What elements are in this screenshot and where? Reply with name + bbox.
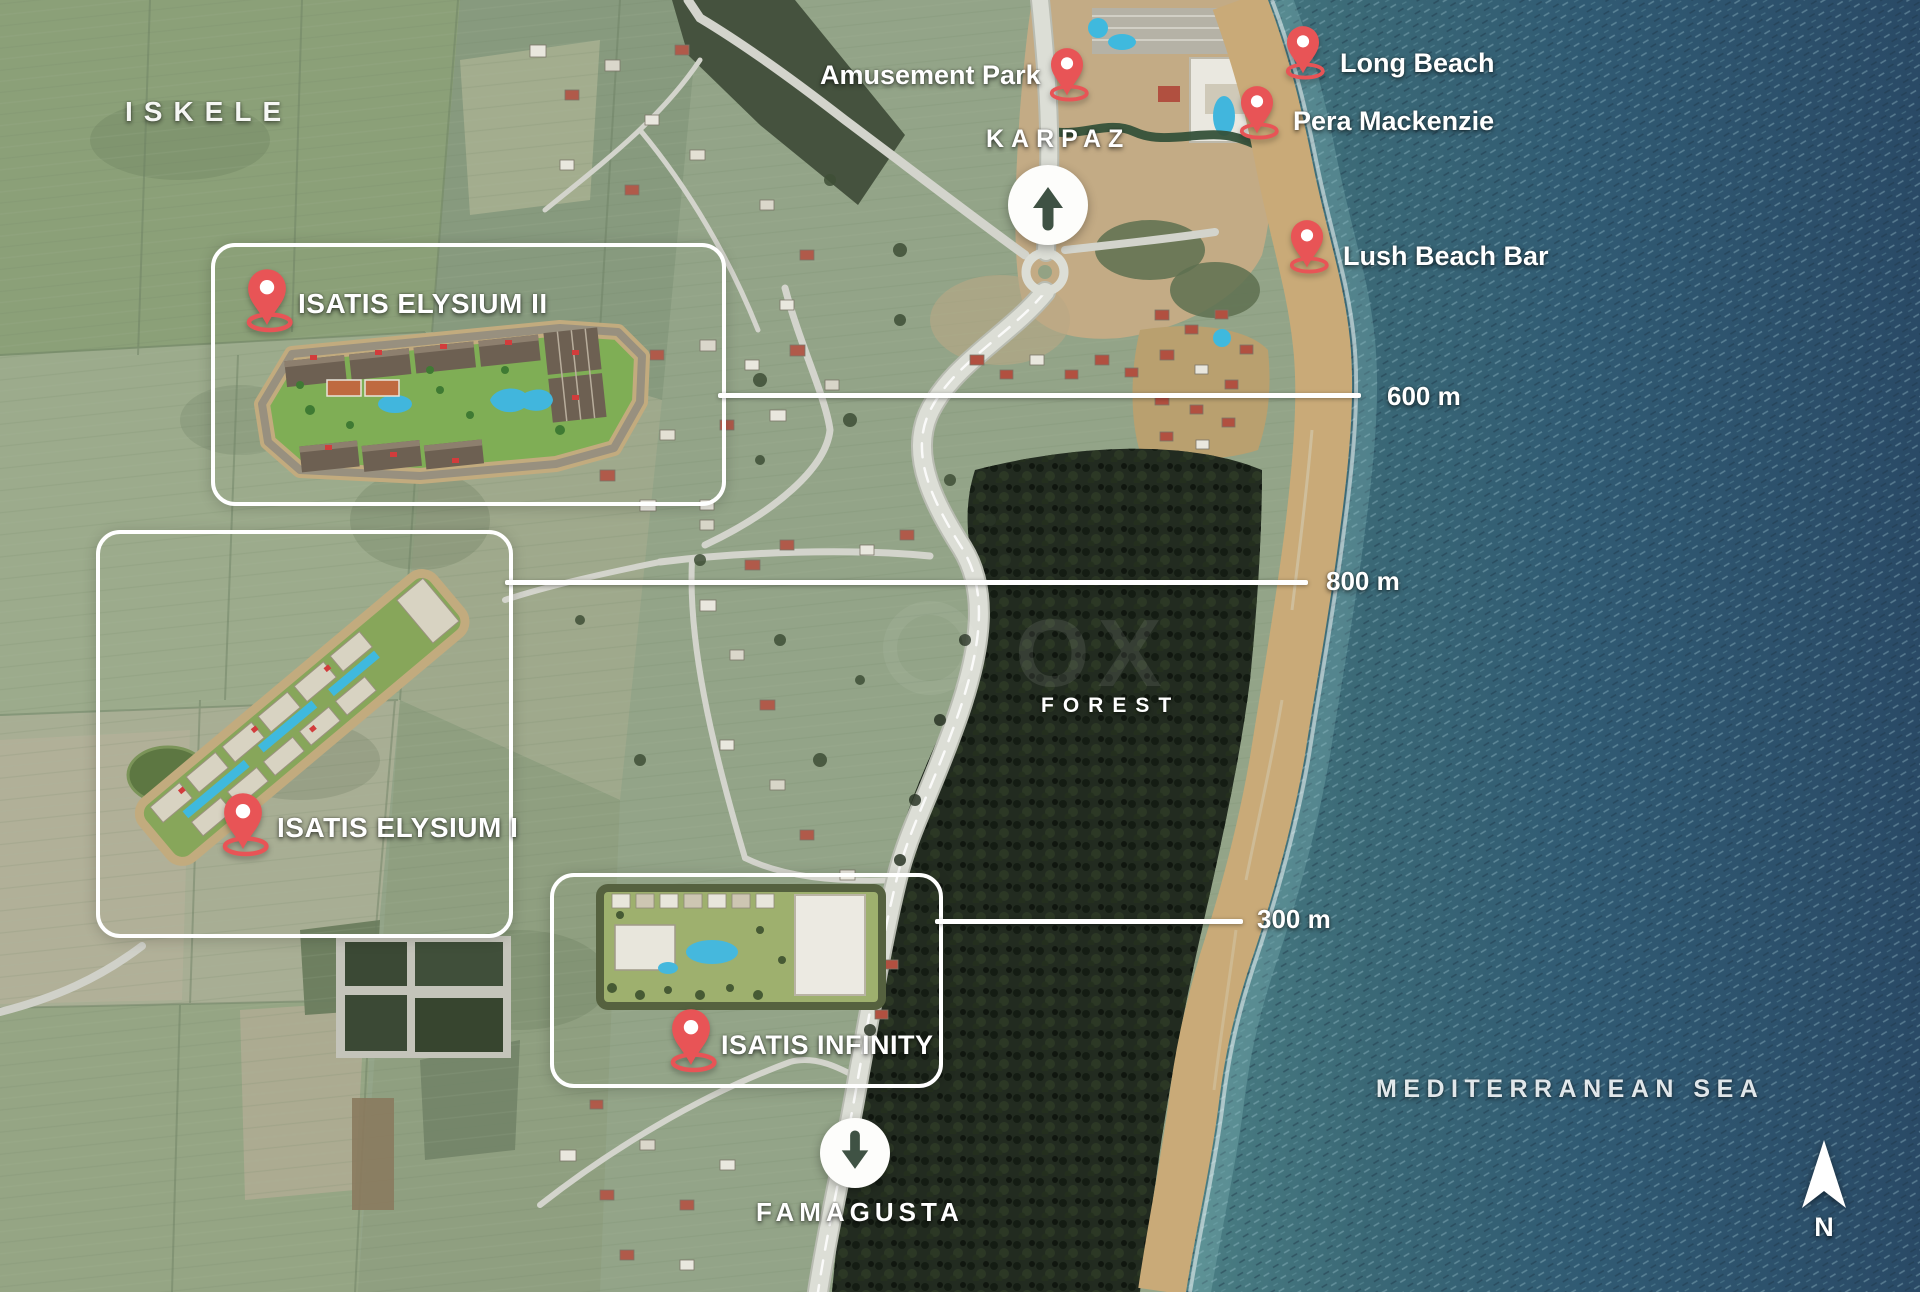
- svg-text:OX: OX: [1015, 600, 1170, 707]
- region-label-forest: FOREST: [1041, 695, 1180, 716]
- map-pin-icon-infinity: [664, 1002, 718, 1074]
- project-label-elysium-1: ISATIS ELYSIUM I: [277, 814, 518, 842]
- distance-label-600m: 600 m: [1387, 383, 1461, 409]
- compass-north-label: N: [1802, 1214, 1846, 1241]
- distance-line-600m: [718, 393, 1361, 398]
- map-pin-icon-long-beach: [1280, 20, 1326, 81]
- direction-label-karpaz: KARPAZ: [986, 127, 1112, 152]
- distance-label-300m: 300 m: [1257, 906, 1331, 932]
- map-pin-icon-amusement-park: [1044, 42, 1090, 103]
- map-pin-icon-elysium-1: [216, 786, 270, 858]
- poi-label-pera-mackenzie: Pera Mackenzie: [1293, 108, 1494, 135]
- region-label-mediterranean-sea: MEDITERRANEAN SEA: [1376, 1077, 1764, 1102]
- distance-line-300m: [935, 919, 1243, 924]
- region-label-iskele: ISKELE: [125, 98, 292, 126]
- project-label-infinity: ISATIS INFINITY: [721, 1032, 934, 1059]
- north-direction-circle: [1008, 165, 1088, 245]
- arrow-down-icon: [832, 1130, 878, 1176]
- poi-label-amusement-park: Amusement Park: [820, 62, 1038, 89]
- direction-label-famagusta: FAMAGUSTA: [756, 1199, 956, 1225]
- project-label-elysium-2: ISATIS ELYSIUM II: [298, 290, 548, 318]
- arrow-up-icon: [1022, 179, 1074, 231]
- poi-label-long-beach: Long Beach: [1340, 50, 1495, 77]
- distance-line-800m: [505, 580, 1308, 585]
- compass-north-icon: [1794, 1136, 1854, 1212]
- map-pin-icon-elysium-2: [240, 262, 294, 334]
- south-direction-circle: [820, 1118, 890, 1188]
- location-map: OX 600 m 800 m 300 m ISKELE FOREST MEDIT…: [0, 0, 1920, 1292]
- poi-label-lush-beach-bar: Lush Beach Bar: [1343, 243, 1549, 270]
- project-frame-elysium-1: [96, 530, 513, 938]
- distance-label-800m: 800 m: [1326, 568, 1400, 594]
- map-pin-icon-lush-beach-bar: [1284, 214, 1330, 275]
- map-pin-icon-pera-mackenzie: [1234, 80, 1280, 141]
